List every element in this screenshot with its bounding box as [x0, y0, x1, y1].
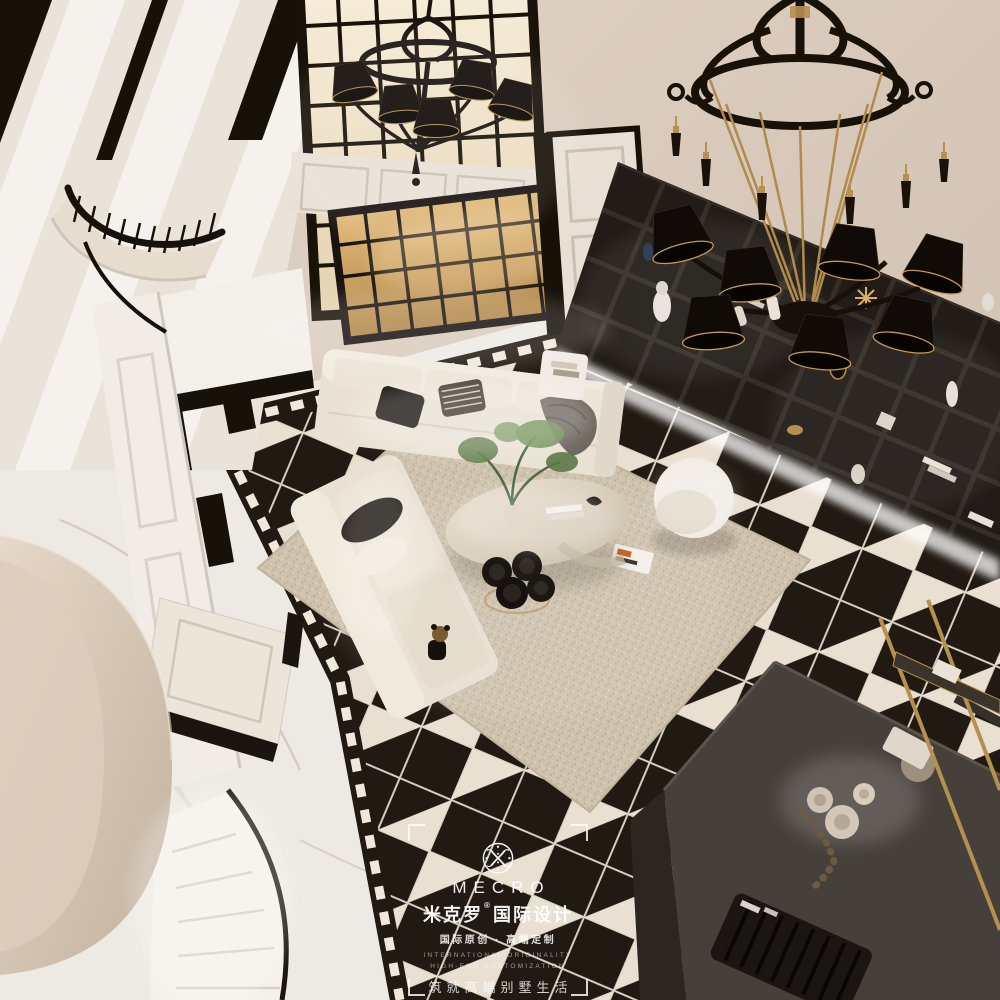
interior-render-stage: MECRO 米克罗®国际设计 国际原创 · 高端定制 INTERNATIONAL… [0, 0, 1000, 1000]
living-room-render [0, 0, 1000, 1000]
